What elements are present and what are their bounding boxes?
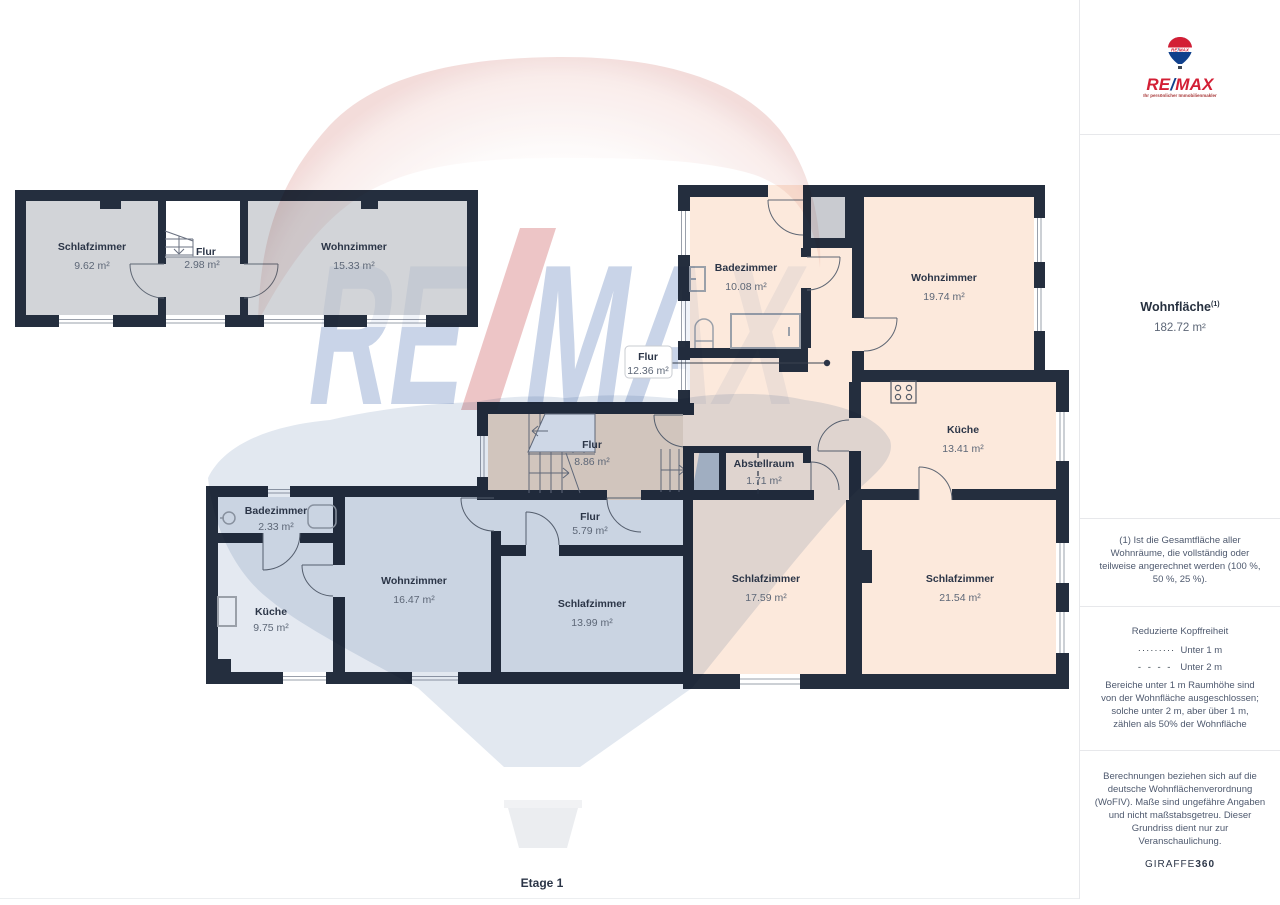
svg-text:19.74 m²: 19.74 m² <box>923 291 965 303</box>
svg-text:Wohnzimmer: Wohnzimmer <box>381 575 447 587</box>
svg-text:Wohnzimmer: Wohnzimmer <box>911 272 977 284</box>
svg-text:Küche: Küche <box>255 606 287 618</box>
svg-text:9.62 m²: 9.62 m² <box>74 260 110 272</box>
svg-text:15.33 m²: 15.33 m² <box>333 260 375 272</box>
svg-text:Flur: Flur <box>196 246 216 258</box>
svg-text:Flur: Flur <box>580 511 600 523</box>
svg-text:Schlafzimmer: Schlafzimmer <box>926 573 994 585</box>
svg-text:Schlafzimmer: Schlafzimmer <box>732 573 800 585</box>
svg-text:9.75 m²: 9.75 m² <box>253 622 289 634</box>
svg-text:12.36 m²: 12.36 m² <box>627 365 669 377</box>
svg-text:Küche: Küche <box>947 424 979 436</box>
svg-text:5.79 m²: 5.79 m² <box>572 525 608 537</box>
svg-text:16.47 m²: 16.47 m² <box>393 594 435 606</box>
svg-text:10.08 m²: 10.08 m² <box>725 281 767 293</box>
svg-text:Badezimmer: Badezimmer <box>245 505 307 517</box>
svg-text:1.71 m²: 1.71 m² <box>746 475 782 487</box>
svg-text:Flur: Flur <box>582 439 602 451</box>
svg-text:Etage 1: Etage 1 <box>521 876 564 890</box>
svg-text:Schlafzimmer: Schlafzimmer <box>558 598 626 610</box>
svg-text:13.41 m²: 13.41 m² <box>942 443 984 455</box>
svg-text:RE/MAX: RE/MAX <box>1171 47 1190 52</box>
svg-text:2.33 m²: 2.33 m² <box>258 521 294 533</box>
svg-text:17.59 m²: 17.59 m² <box>745 592 787 604</box>
svg-text:Wohnzimmer: Wohnzimmer <box>321 241 387 253</box>
svg-text:Flur: Flur <box>638 351 658 363</box>
svg-text:2.98 m²: 2.98 m² <box>184 259 220 271</box>
svg-text:Abstellraum: Abstellraum <box>734 458 795 470</box>
svg-text:8.86 m²: 8.86 m² <box>574 456 610 468</box>
svg-text:Schlafzimmer: Schlafzimmer <box>58 241 126 253</box>
svg-text:Badezimmer: Badezimmer <box>715 262 777 274</box>
svg-text:21.54 m²: 21.54 m² <box>939 592 981 604</box>
svg-text:13.99 m²: 13.99 m² <box>571 617 613 629</box>
